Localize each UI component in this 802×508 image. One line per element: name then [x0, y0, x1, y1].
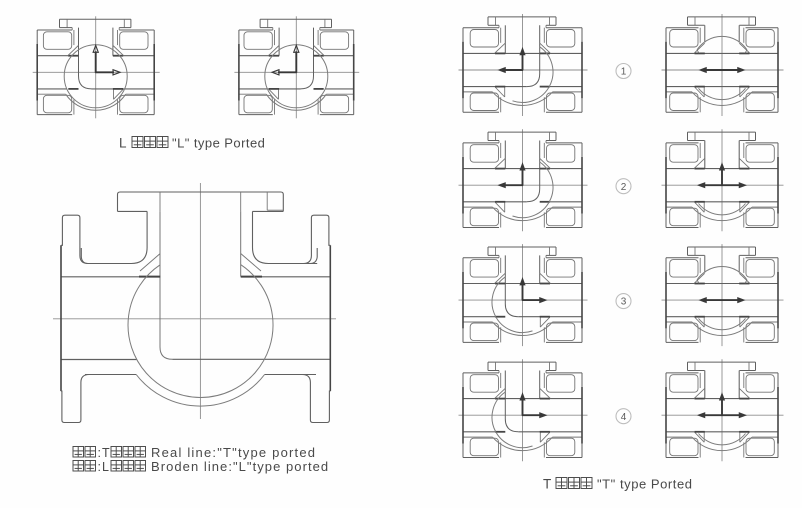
svg-text:T: T — [102, 446, 110, 460]
svg-text:"T" type Ported: "T" type Ported — [597, 477, 693, 492]
svg-text:4: 4 — [621, 412, 627, 423]
svg-text:"L" type Ported: "L" type Ported — [172, 136, 265, 151]
svg-text::: : — [98, 460, 102, 474]
svg-text:L: L — [119, 136, 127, 151]
svg-text:1: 1 — [621, 67, 627, 78]
svg-text:2: 2 — [621, 182, 627, 193]
svg-text:Broden line:"L"type ported: Broden line:"L"type ported — [151, 459, 329, 474]
svg-text:L: L — [102, 460, 109, 474]
svg-text::: : — [98, 446, 102, 460]
svg-text:Real line:"T"type ported: Real line:"T"type ported — [151, 445, 316, 460]
svg-text:T: T — [543, 477, 552, 492]
svg-text:3: 3 — [621, 297, 627, 308]
